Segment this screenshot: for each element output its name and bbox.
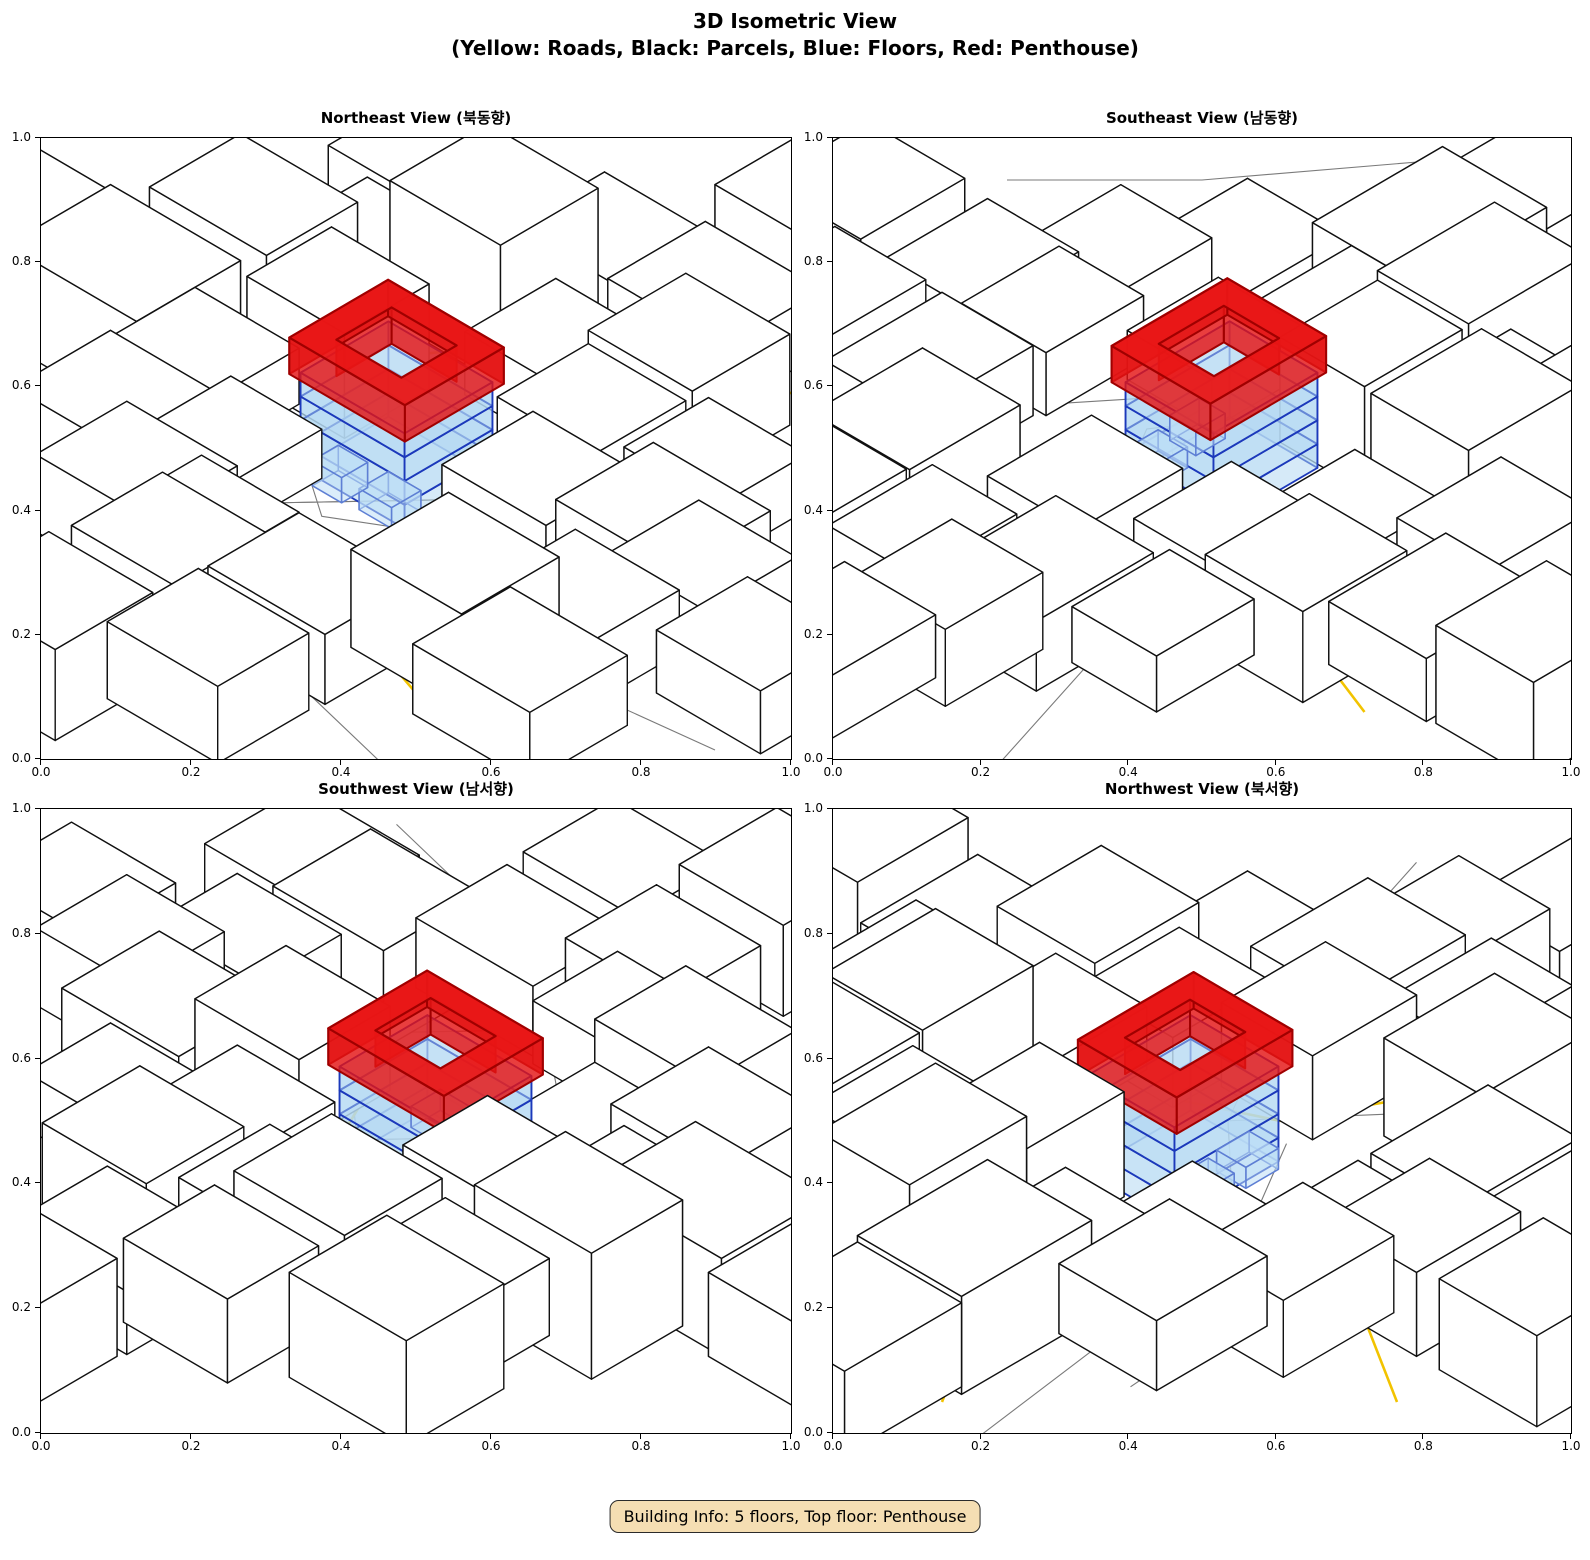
x-tick-mark (1422, 1433, 1423, 1439)
subplot-southeast: Southeast View (남동향) 0.00.00.20.20.40.40… (832, 137, 1572, 760)
x-tick-label: 0.0 (21, 765, 61, 779)
x-tick-mark (980, 759, 981, 765)
y-tick-mark (827, 1058, 833, 1059)
y-tick-label: 1.0 (783, 130, 823, 144)
x-tick-label: 0.0 (813, 1439, 853, 1453)
buildings-layer (833, 809, 1571, 1433)
buildings-layer (41, 809, 791, 1433)
x-tick-mark (1422, 759, 1423, 765)
y-tick-mark (35, 933, 41, 934)
y-tick-label: 0.6 (783, 378, 823, 392)
figure-title-line1: 3D Isometric View (0, 8, 1590, 35)
y-tick-mark (35, 261, 41, 262)
x-tick-mark (190, 759, 191, 765)
figure-title: 3D Isometric View (Yellow: Roads, Black:… (0, 8, 1590, 62)
x-tick-mark (1275, 759, 1276, 765)
y-tick-mark (827, 1182, 833, 1183)
scene-canvas-southeast (833, 138, 1571, 759)
x-tick-label: 0.6 (1256, 1439, 1296, 1453)
y-tick-mark (35, 1058, 41, 1059)
x-tick-mark (340, 759, 341, 765)
x-tick-mark (640, 759, 641, 765)
x-tick-label: 1.0 (771, 1439, 811, 1453)
y-tick-label: 1.0 (0, 801, 31, 815)
y-tick-mark (35, 510, 41, 511)
x-tick-mark (1570, 759, 1571, 765)
x-tick-mark (832, 1433, 833, 1439)
y-tick-mark (827, 634, 833, 635)
y-tick-label: 0.0 (783, 751, 823, 765)
subplot-title-northeast: Northeast View (북동향) (41, 107, 791, 128)
x-tick-mark (40, 759, 41, 765)
x-tick-label: 0.6 (471, 1439, 511, 1453)
buildings-layer (833, 138, 1571, 759)
x-tick-mark (980, 1433, 981, 1439)
x-tick-label: 0.2 (171, 765, 211, 779)
x-tick-mark (1275, 1433, 1276, 1439)
y-tick-mark (35, 808, 41, 809)
subplot-title-southwest: Southwest View (남서향) (41, 778, 791, 799)
x-tick-label: 0.8 (621, 765, 661, 779)
x-tick-label: 0.4 (321, 765, 361, 779)
x-tick-label: 1.0 (771, 765, 811, 779)
x-tick-label: 0.6 (1256, 765, 1296, 779)
x-tick-label: 0.6 (471, 765, 511, 779)
x-tick-label: 0.4 (321, 1439, 361, 1453)
subplot-northeast: Northeast View (북동향) 0.00.00.20.20.40.40… (40, 137, 792, 760)
x-tick-label: 0.2 (961, 1439, 1001, 1453)
x-tick-label: 1.0 (1551, 1439, 1590, 1453)
y-tick-mark (827, 1307, 833, 1308)
x-tick-mark (1127, 1433, 1128, 1439)
y-tick-mark (827, 385, 833, 386)
y-tick-mark (35, 1307, 41, 1308)
x-tick-label: 0.0 (21, 1439, 61, 1453)
x-tick-label: 0.8 (1403, 765, 1443, 779)
y-tick-label: 0.2 (0, 1300, 31, 1314)
y-tick-label: 1.0 (783, 801, 823, 815)
y-tick-label: 0.0 (783, 1425, 823, 1439)
x-tick-label: 0.2 (961, 765, 1001, 779)
scene-canvas-northeast (41, 138, 791, 759)
y-tick-label: 0.8 (0, 254, 31, 268)
y-tick-label: 0.6 (0, 378, 31, 392)
x-tick-label: 0.0 (813, 765, 853, 779)
x-tick-mark (1570, 1433, 1571, 1439)
x-tick-mark (490, 759, 491, 765)
x-tick-mark (640, 1433, 641, 1439)
y-tick-label: 0.4 (0, 1175, 31, 1189)
y-tick-label: 1.0 (0, 130, 31, 144)
y-tick-label: 0.2 (783, 1300, 823, 1314)
y-tick-label: 0.2 (783, 627, 823, 641)
x-tick-mark (1127, 759, 1128, 765)
y-tick-mark (35, 1182, 41, 1183)
x-tick-mark (190, 1433, 191, 1439)
y-tick-mark (827, 808, 833, 809)
y-tick-mark (827, 510, 833, 511)
y-tick-label: 0.6 (783, 1051, 823, 1065)
x-tick-label: 0.8 (621, 1439, 661, 1453)
y-tick-mark (35, 634, 41, 635)
y-tick-label: 0.8 (783, 926, 823, 940)
buildings-layer (41, 138, 791, 759)
y-tick-mark (35, 385, 41, 386)
y-tick-label: 0.0 (0, 1425, 31, 1439)
building-info-box: Building Info: 5 floors, Top floor: Pent… (610, 1500, 981, 1533)
y-tick-label: 0.8 (783, 254, 823, 268)
scene-canvas-southwest (41, 809, 791, 1433)
y-tick-mark (35, 137, 41, 138)
x-tick-mark (490, 1433, 491, 1439)
x-tick-label: 0.8 (1403, 1439, 1443, 1453)
x-tick-mark (40, 1433, 41, 1439)
x-tick-label: 1.0 (1551, 765, 1590, 779)
y-tick-mark (827, 261, 833, 262)
x-tick-label: 0.4 (1108, 1439, 1148, 1453)
subplot-southwest: Southwest View (남서향) 0.00.00.20.20.40.40… (40, 808, 792, 1434)
y-tick-label: 0.6 (0, 1051, 31, 1065)
y-tick-label: 0.4 (783, 503, 823, 517)
subplot-title-northwest: Northwest View (북서향) (833, 778, 1571, 799)
subplot-title-southeast: Southeast View (남동향) (833, 107, 1571, 128)
y-tick-mark (827, 137, 833, 138)
subplot-northwest: Northwest View (북서향) 0.00.00.20.20.40.40… (832, 808, 1572, 1434)
y-tick-label: 0.8 (0, 926, 31, 940)
x-tick-label: 0.4 (1108, 765, 1148, 779)
y-tick-label: 0.0 (0, 751, 31, 765)
y-tick-label: 0.4 (0, 503, 31, 517)
x-tick-mark (340, 1433, 341, 1439)
y-tick-mark (827, 933, 833, 934)
figure-title-line2: (Yellow: Roads, Black: Parcels, Blue: Fl… (0, 35, 1590, 62)
y-tick-label: 0.2 (0, 627, 31, 641)
x-tick-mark (832, 759, 833, 765)
scene-canvas-northwest (833, 809, 1571, 1433)
y-tick-label: 0.4 (783, 1175, 823, 1189)
x-tick-label: 0.2 (171, 1439, 211, 1453)
